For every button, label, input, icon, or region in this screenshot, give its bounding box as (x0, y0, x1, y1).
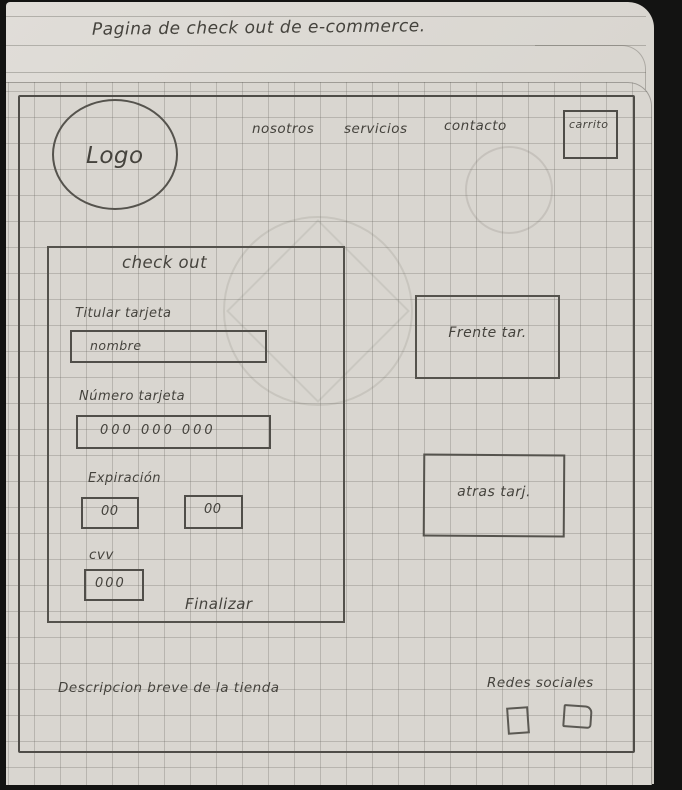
photo-frame: Pagina de check out de e-commerce. Logo … (0, 0, 682, 790)
social-media-label: Redes sociales (487, 675, 594, 691)
nav-item-servicios[interactable]: servicios (344, 121, 408, 137)
page-title: Pagina de check out de e-commerce. (92, 16, 426, 39)
card-holder-input[interactable]: nombre (70, 330, 267, 363)
social-icon-1[interactable] (506, 706, 530, 734)
cvv-placeholder: 000 (95, 576, 126, 591)
checkout-panel: check out Titular tarjeta nombre Número … (47, 246, 345, 623)
card-number-placeholder: 000 000 000 (100, 423, 216, 438)
notebook-paper: Pagina de check out de e-commerce. Logo … (6, 2, 654, 784)
expiry-year-placeholder: 00 (204, 502, 222, 517)
checkout-heading: check out (122, 253, 207, 272)
card-front-preview: Frente tar. (415, 295, 560, 379)
grid-paper: Logo nosotros servicios contacto carrito… (6, 82, 652, 785)
nav-item-contacto[interactable]: contacto (444, 118, 507, 134)
cart-button[interactable]: carrito (563, 110, 618, 159)
card-back-label: atras tarj. (425, 484, 563, 501)
card-holder-placeholder: nombre (90, 338, 142, 353)
card-holder-label: Titular tarjeta (75, 306, 172, 321)
card-number-input[interactable]: 000 000 000 (76, 415, 271, 449)
store-description: Descripcion breve de la tienda (58, 680, 280, 696)
finalize-button[interactable]: Finalizar (185, 595, 253, 613)
card-back-preview: atras tarj. (423, 454, 566, 538)
expiry-month-placeholder: 00 (101, 504, 119, 519)
card-number-label: Número tarjeta (79, 389, 185, 404)
expiry-month-input[interactable]: 00 (81, 497, 139, 529)
expiry-label: Expiración (88, 471, 161, 486)
card-front-label: Frente tar. (417, 325, 558, 341)
cvv-label: cvv (89, 547, 114, 563)
expiry-year-input[interactable]: 00 (184, 495, 243, 529)
cart-label: carrito (569, 118, 608, 131)
social-icon-2[interactable] (562, 704, 593, 729)
logo-label: Logo (86, 143, 144, 169)
logo[interactable]: Logo (52, 99, 178, 210)
nav-item-nosotros[interactable]: nosotros (252, 121, 314, 137)
cvv-input[interactable]: 000 (84, 569, 144, 601)
